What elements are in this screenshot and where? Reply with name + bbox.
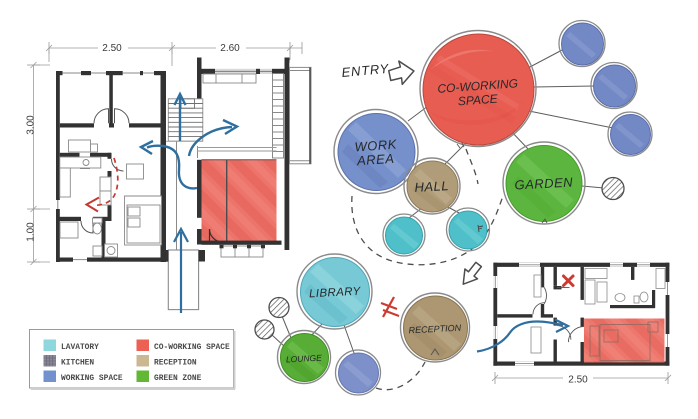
svg-text:KITCHEN: KITCHEN (61, 358, 94, 367)
svg-text:2.50: 2.50 (102, 43, 122, 54)
svg-text:1.00: 1.00 (26, 222, 37, 242)
svg-text:LOUNGE: LOUNGE (286, 353, 323, 365)
svg-text:GREEN ZONE: GREEN ZONE (154, 374, 202, 383)
svg-text:AREA: AREA (356, 151, 395, 169)
svg-text:3.00: 3.00 (26, 115, 37, 135)
svg-text:2.60: 2.60 (220, 43, 240, 54)
svg-text:2.50: 2.50 (568, 375, 588, 386)
svg-text:CO-WORKING SPACE: CO-WORKING SPACE (154, 343, 230, 352)
svg-text:SPACE: SPACE (457, 92, 499, 109)
svg-text:WORKING SPACE: WORKING SPACE (61, 374, 123, 383)
svg-text:LAVATORY: LAVATORY (61, 343, 99, 352)
svg-text:RECEPTION: RECEPTION (154, 358, 197, 367)
svg-text:HALL: HALL (414, 178, 449, 195)
svg-text:GARDEN: GARDEN (514, 174, 573, 192)
